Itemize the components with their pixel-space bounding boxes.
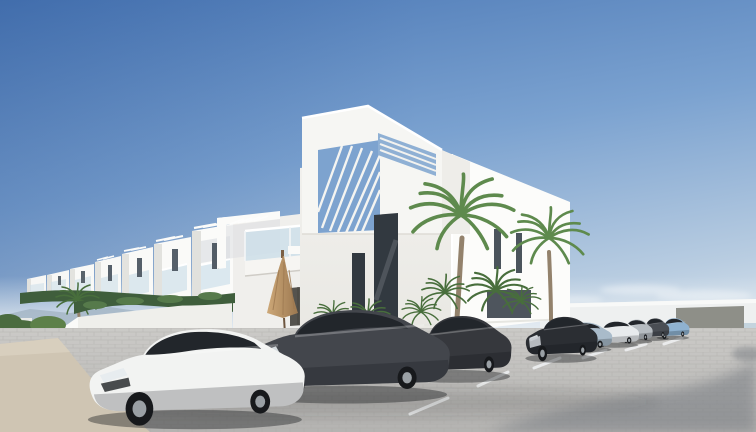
scene-svg — [0, 0, 756, 432]
window-slit — [516, 233, 522, 273]
window-slit — [494, 229, 501, 269]
outdoor-cushion — [288, 246, 302, 254]
architectural-render-image — [0, 0, 756, 432]
